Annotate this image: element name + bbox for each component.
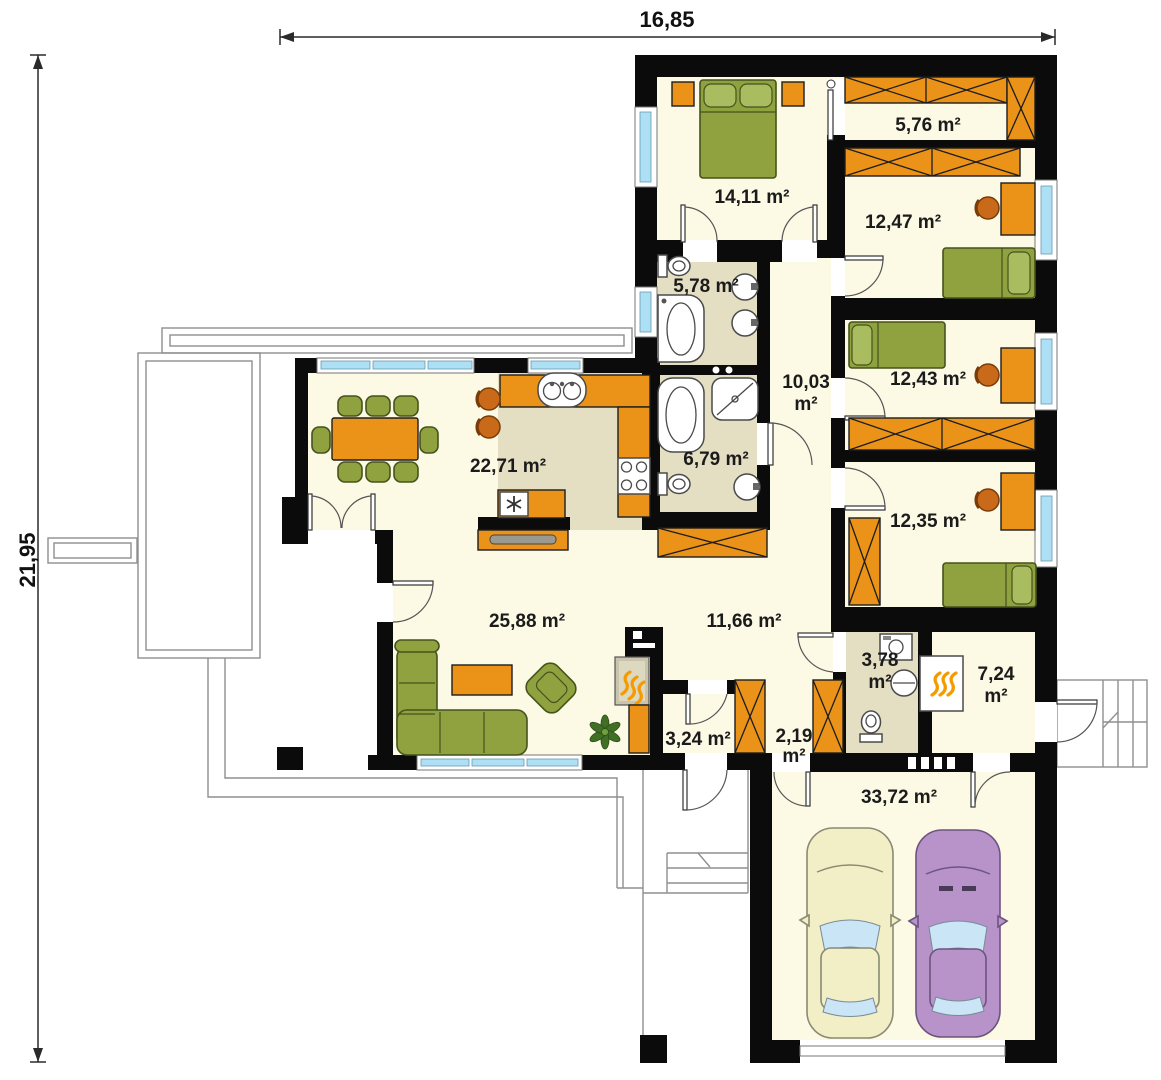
- refrigerator: [500, 492, 528, 516]
- room-label-hall: 11,66 m²: [707, 611, 782, 632]
- window: [1035, 180, 1057, 260]
- room-label-bedroom-1: 14,11 m²: [715, 187, 790, 208]
- room-label-vestibule-unit: m²: [782, 746, 805, 767]
- single-bed: [849, 322, 945, 368]
- wardrobe: [849, 518, 880, 605]
- wardrobe: [813, 680, 843, 753]
- desk-chair: [976, 197, 999, 219]
- dimension-left: 21,95: [15, 55, 46, 1062]
- room-label-bedroom-2: 12,47 m²: [865, 212, 941, 233]
- window: [1035, 490, 1057, 567]
- window: [1035, 333, 1057, 410]
- double-bed: [700, 80, 776, 178]
- window: [317, 358, 474, 373]
- wardrobe: [658, 528, 767, 557]
- car-yellow: [800, 828, 900, 1038]
- wardrobe: [735, 680, 765, 753]
- desk: [1001, 183, 1035, 235]
- furnace: [920, 656, 963, 711]
- floor-plan: 14,11 m² 5,76 m² 12,47 m² 5,78 m² 10,03 …: [0, 0, 1161, 1080]
- sink: [734, 474, 760, 500]
- tv-sideboard: [478, 530, 568, 550]
- room-label-boiler-unit: m²: [984, 686, 1007, 707]
- room-label-living-room: 25,88 m²: [489, 611, 565, 632]
- room-label-hallway-unit: m²: [794, 394, 817, 415]
- door: [827, 79, 845, 140]
- water-heater: [891, 670, 917, 696]
- bathtub: [658, 378, 704, 452]
- room-label-vestibule: 2,19: [776, 726, 813, 747]
- dimension-width-label: 16,85: [639, 7, 694, 32]
- desk-chair: [976, 364, 999, 386]
- corner-bathtub: [658, 295, 704, 362]
- room-label-bathroom-2: 6,79 m²: [683, 449, 748, 470]
- room-label-utility: 3,78: [862, 650, 899, 671]
- room-label-closet: 5,76 m²: [895, 115, 960, 136]
- entrance-steps: [643, 853, 748, 893]
- bar-stool: [477, 388, 500, 410]
- door: [1035, 700, 1097, 742]
- desk-chair: [976, 489, 999, 511]
- window: [417, 755, 582, 770]
- room-label-kitchen-dining: 22,71 m²: [470, 456, 546, 477]
- room-label-bedroom-3: 12,43 m²: [890, 369, 966, 390]
- room-label-boiler: 7,24: [978, 664, 1015, 685]
- wardrobe: [845, 148, 1020, 176]
- room-label-bedroom-4: 12,35 m²: [890, 511, 966, 532]
- dimension-top: 16,85: [280, 7, 1055, 45]
- dining-table: [332, 418, 418, 460]
- single-bed: [943, 563, 1036, 607]
- room-label-hallway: 10,03: [782, 372, 830, 393]
- room-label-utility-unit: m²: [868, 672, 891, 693]
- sink: [732, 310, 758, 336]
- desk: [1001, 348, 1035, 403]
- side-entrance-steps: [1057, 680, 1147, 767]
- single-bed: [943, 248, 1035, 298]
- coffee-table: [452, 665, 512, 695]
- wardrobe: [849, 418, 1035, 450]
- nightstand: [782, 82, 804, 106]
- stove: [618, 458, 650, 494]
- window: [528, 358, 583, 373]
- window: [635, 107, 657, 187]
- room-label-bathroom-1: 5,78 m²: [673, 276, 738, 297]
- toilet: [658, 473, 690, 495]
- nightstand: [672, 82, 694, 106]
- toilet: [658, 255, 690, 277]
- door: [683, 753, 727, 810]
- dimension-height-label: 21,95: [15, 532, 40, 587]
- bar-stool: [477, 416, 500, 438]
- car-purple: [909, 830, 1007, 1037]
- room-label-garage: 33,72 m²: [861, 787, 937, 808]
- kitchen-sink: [538, 373, 586, 407]
- floor-plan-page: 14,11 m² 5,76 m² 12,47 m² 5,78 m² 10,03 …: [0, 0, 1161, 1080]
- toilet: [860, 711, 882, 742]
- desk: [1001, 473, 1035, 530]
- shower: [712, 378, 758, 420]
- window: [635, 287, 657, 337]
- room-label-entry-hall: 3,24 m²: [665, 729, 730, 750]
